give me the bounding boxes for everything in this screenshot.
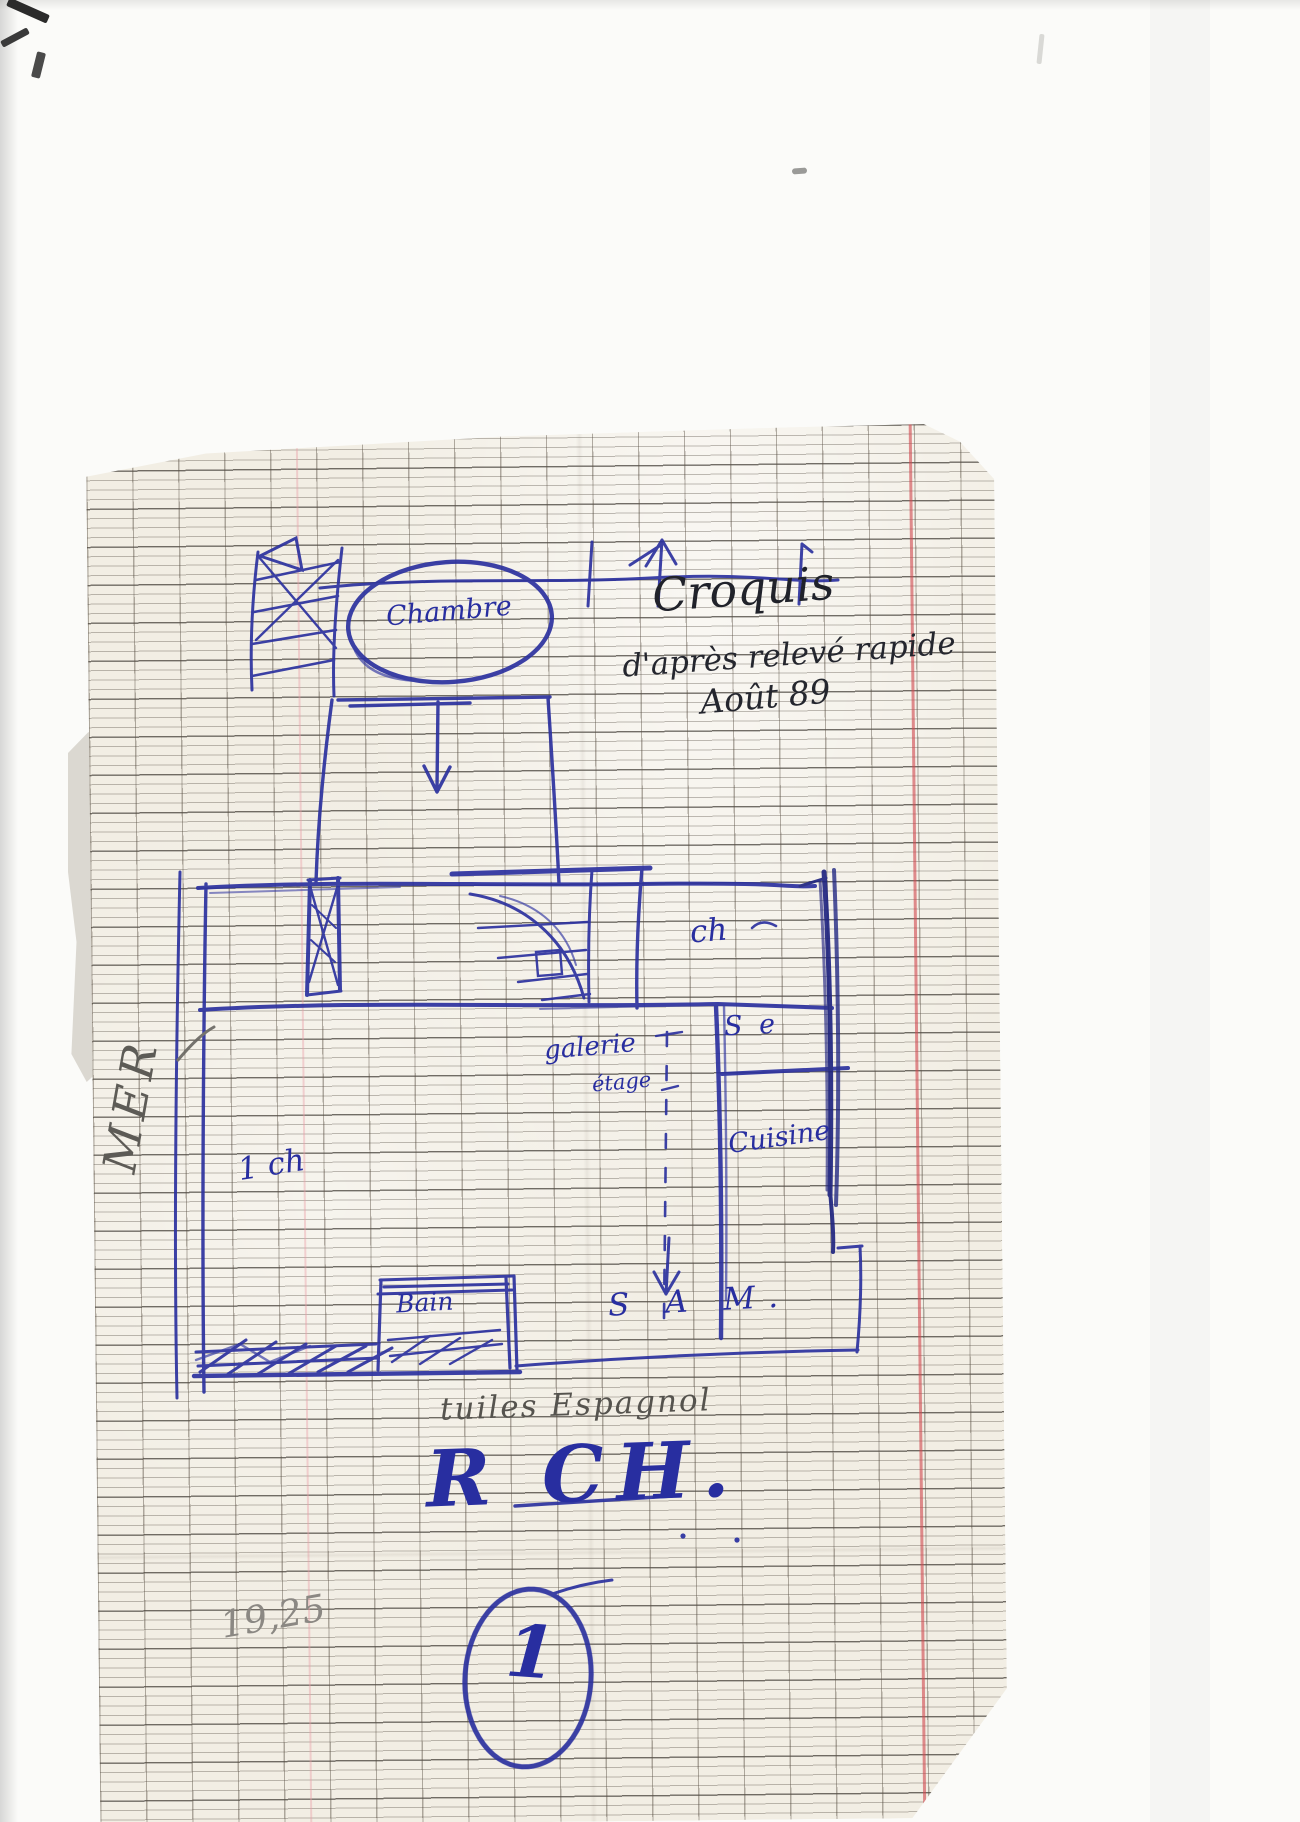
scan-artifact xyxy=(31,51,46,78)
note-material: tuiles Espagnol xyxy=(440,1385,713,1425)
scan-artifact xyxy=(1036,34,1044,64)
room-label-galerie: galerie xyxy=(543,1030,637,1064)
page-number: 1 xyxy=(504,1614,559,1689)
room-label-bain: Bain xyxy=(395,1289,454,1317)
paper-crease xyxy=(576,428,598,1822)
room-label-etage: étage xyxy=(591,1069,652,1095)
scan-edge-shadow-top xyxy=(0,0,1300,10)
scan-edge-shadow-left xyxy=(0,0,18,1822)
scanned-sketch-page: Croquis d'après relevé rapide Août 89 Ch… xyxy=(0,0,1300,1822)
note-level-rch: R CH. xyxy=(425,1431,742,1520)
scan-band-right xyxy=(1150,0,1210,1822)
note-croquis: Croquis xyxy=(651,560,836,619)
scan-artifact xyxy=(792,167,807,174)
note-date: Août 89 xyxy=(699,674,832,718)
paper-crease xyxy=(97,1545,1005,1561)
room-label-salle-eau: S e xyxy=(723,1011,779,1041)
room-label-ch: ch xyxy=(689,914,729,948)
